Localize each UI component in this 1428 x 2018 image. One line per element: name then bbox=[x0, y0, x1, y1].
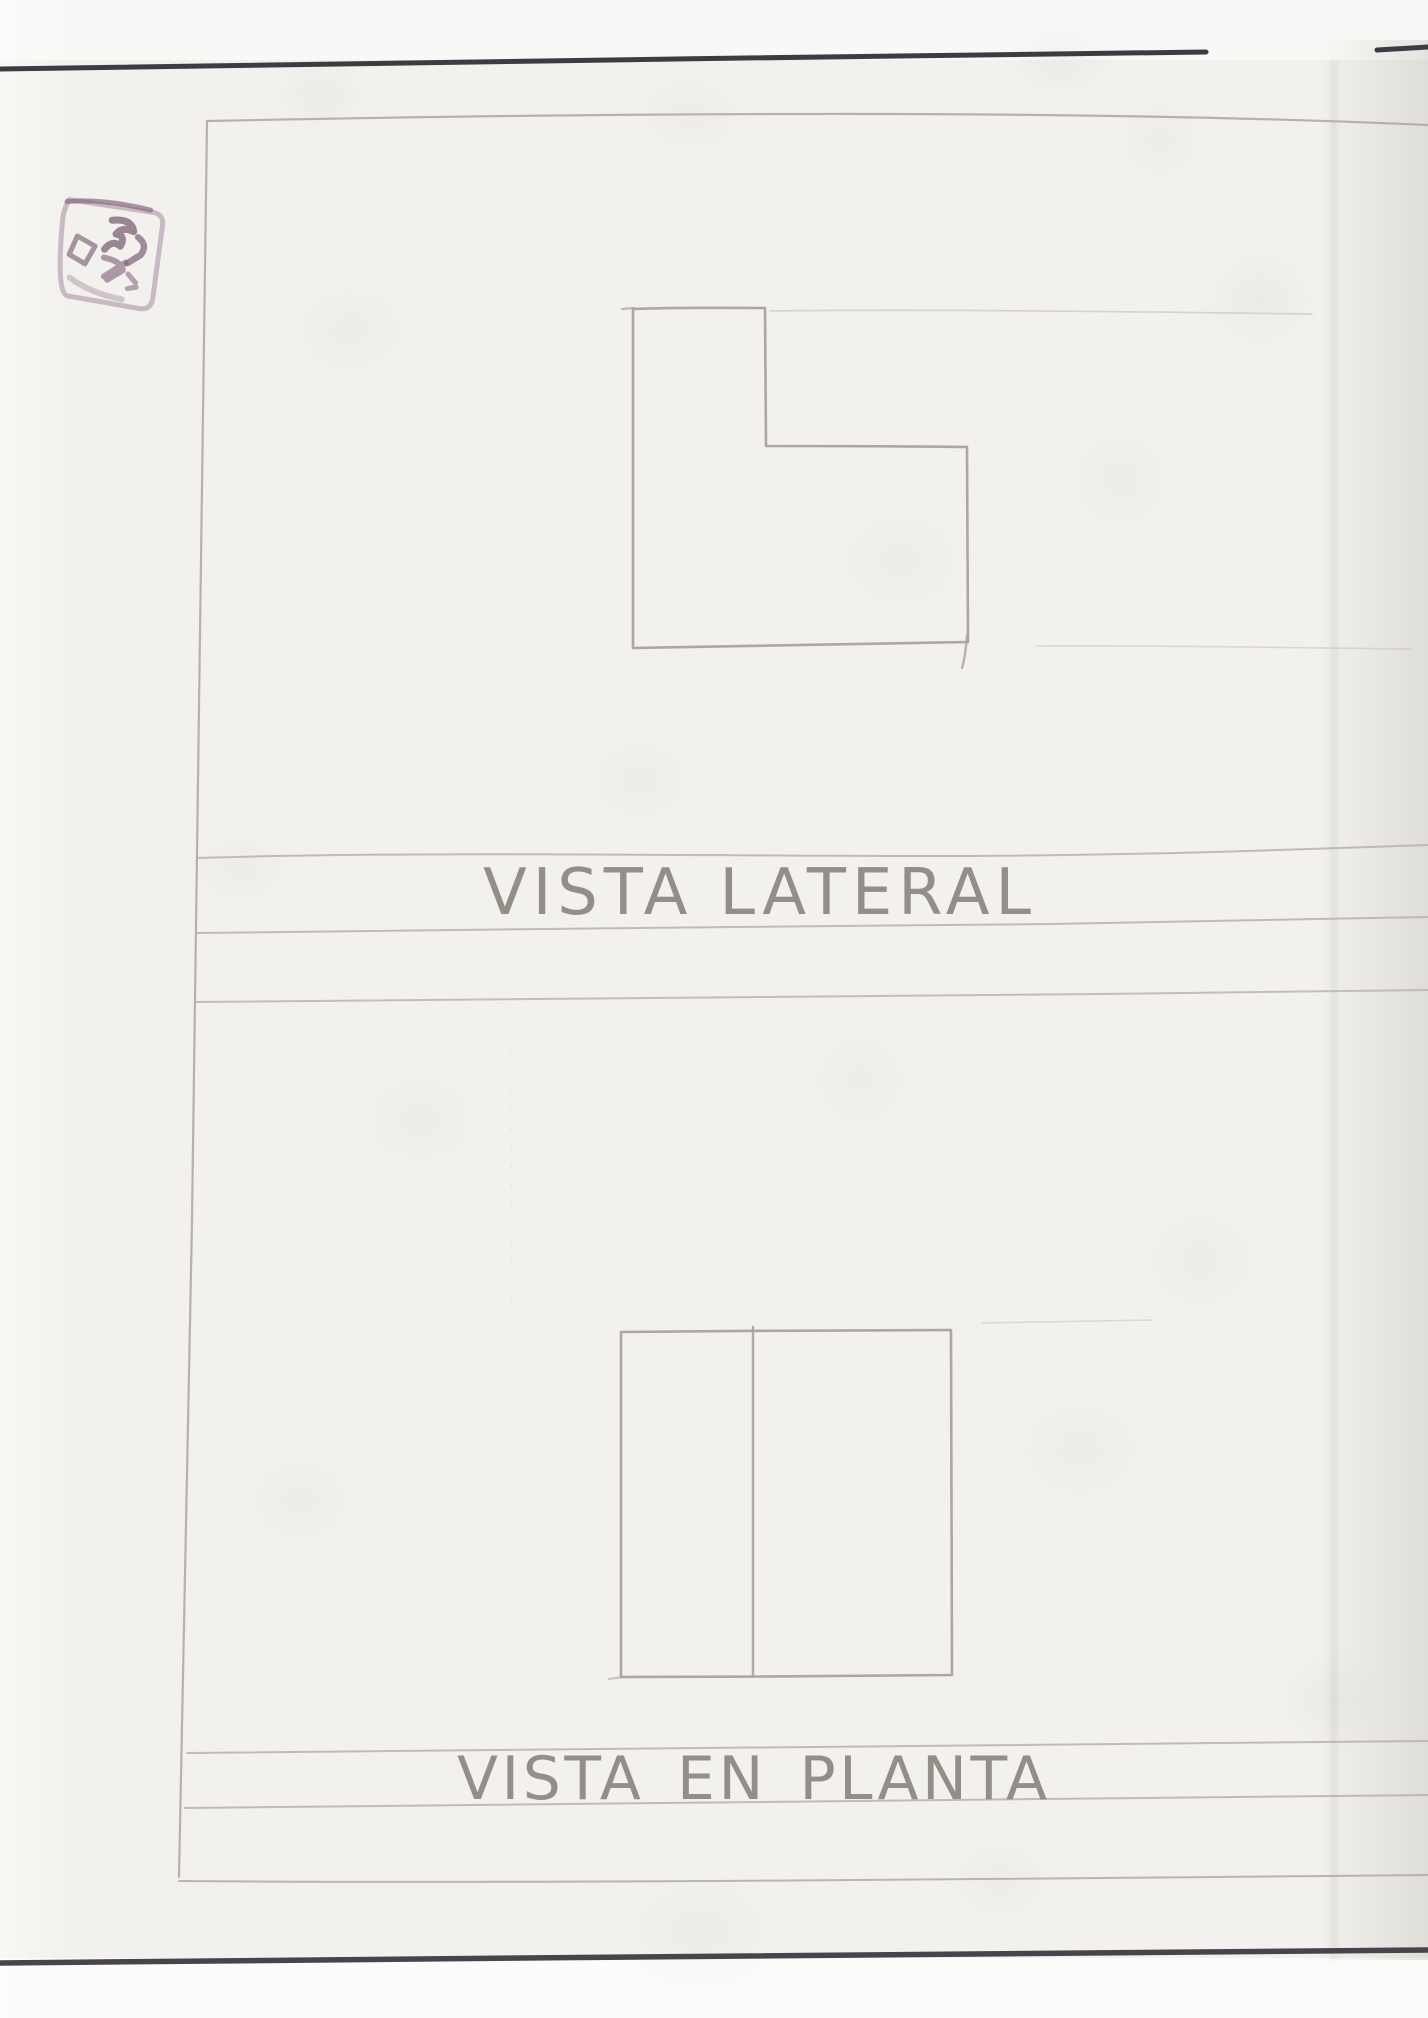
page-top-edge-line-right bbox=[1377, 47, 1428, 50]
stamp-border-accent bbox=[67, 199, 151, 210]
side-view-figure-outline bbox=[633, 308, 968, 648]
frame-bottom-line bbox=[179, 1875, 1428, 1882]
side-view-construction-line-bottom bbox=[1036, 646, 1412, 649]
plan-view-construction-line-top bbox=[982, 1320, 1152, 1323]
page-top-edge-line bbox=[0, 52, 1206, 69]
stamp-glyph-mark bbox=[68, 235, 96, 265]
page-bottom-edge-line bbox=[0, 1950, 1428, 1963]
plan-view-figure-outline bbox=[621, 1330, 952, 1677]
stamp-glyph-mark bbox=[124, 274, 140, 291]
ink-stamp-icon bbox=[56, 199, 164, 310]
plan-view-title: VISTA EN PLANTA bbox=[457, 1744, 1047, 1814]
side-view-figure-overshoot bbox=[622, 308, 634, 309]
side-title-band-line-3 bbox=[195, 990, 1428, 1002]
side-view-title: VISTA LATERAL bbox=[483, 856, 1031, 930]
drawing-canvas: VISTA LATERAL VISTA EN PLANTA bbox=[0, 0, 1428, 2018]
stamp-glyph-mark bbox=[103, 217, 136, 256]
frame-top-line bbox=[207, 114, 1428, 125]
stamp-glyph-mark bbox=[127, 237, 146, 267]
side-view-construction-line-top bbox=[770, 310, 1312, 314]
frame-left-line bbox=[179, 121, 207, 1877]
scanned-drawing-page: VISTA LATERAL VISTA EN PLANTA bbox=[0, 0, 1428, 2018]
paper-faint-crease bbox=[510, 1050, 512, 1330]
stamp-glyph-mark bbox=[98, 256, 126, 284]
plan-view-figure-overshoot bbox=[609, 1677, 623, 1679]
